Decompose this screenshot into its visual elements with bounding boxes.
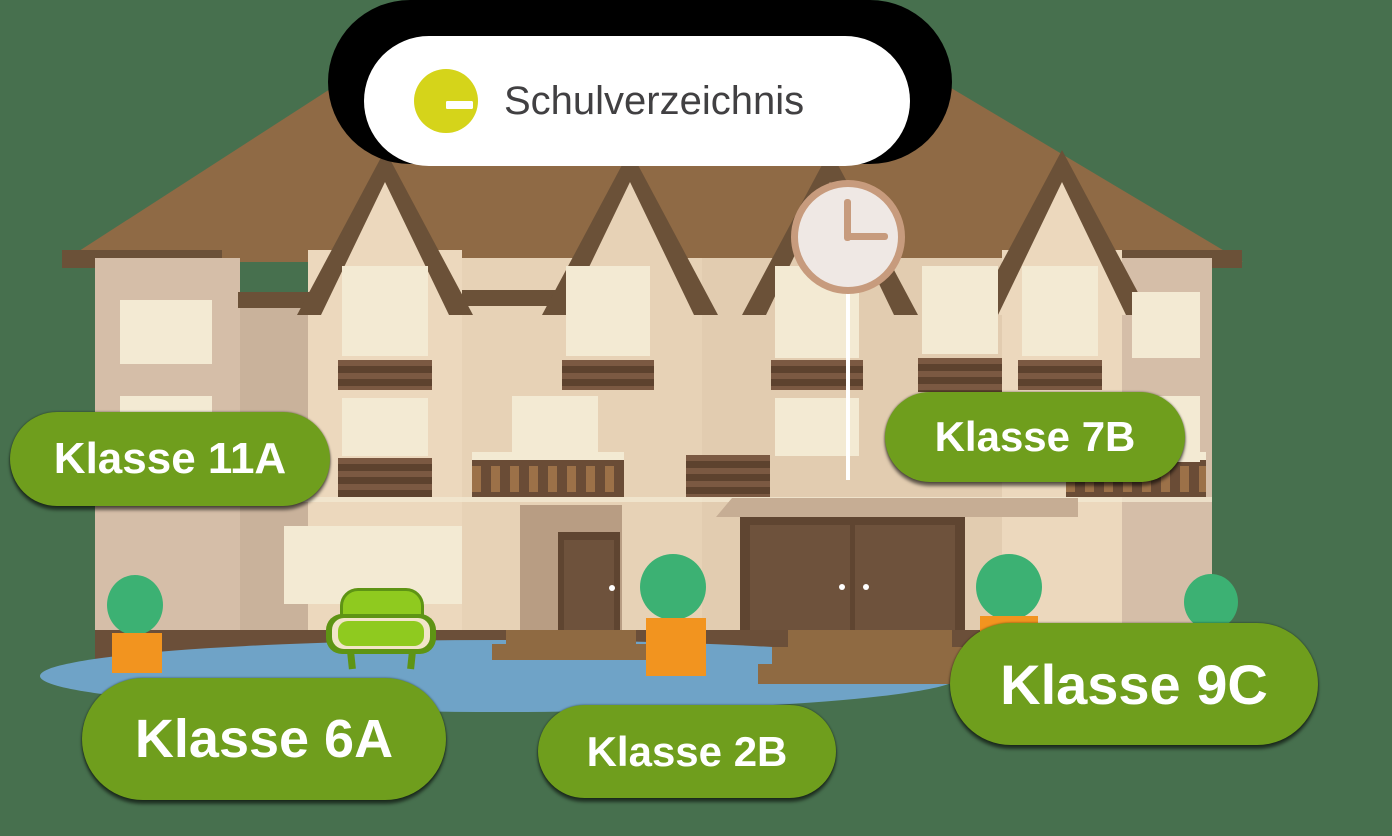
window: [120, 300, 212, 364]
door-knob: [839, 584, 845, 590]
entrance-door-panel: [564, 540, 614, 630]
window: [1132, 292, 1200, 358]
directory-title: Schulverzeichnis: [504, 36, 804, 166]
balcony: [472, 460, 624, 497]
window: [566, 266, 650, 356]
clock-pendulum-line: [846, 292, 850, 480]
window: [922, 266, 998, 354]
main-steps: [758, 664, 966, 684]
louver-panel: [562, 360, 654, 390]
couch-seat: [338, 621, 424, 646]
double-door-left[interactable]: [750, 525, 850, 630]
class-label-11a[interactable]: Klasse 11A: [10, 412, 330, 506]
tree: [640, 554, 706, 620]
door-knob: [863, 584, 869, 590]
porch-beam: [716, 498, 1078, 517]
louver-panel: [918, 358, 1002, 392]
tree: [107, 575, 163, 635]
main-steps: [772, 647, 962, 664]
planter-pot: [112, 633, 162, 673]
louver-panel: [1018, 360, 1102, 390]
louver-panel: [338, 458, 432, 497]
school-directory-scene: Klasse 11A Klasse 7B Klasse 6A Klasse 2B…: [0, 0, 1392, 836]
balcony-ledge: [472, 452, 624, 460]
class-label-7b[interactable]: Klasse 7B: [885, 392, 1185, 482]
class-label-2b[interactable]: Klasse 2B: [538, 705, 836, 798]
louver-panel: [686, 455, 770, 497]
window: [342, 398, 428, 456]
double-door-right[interactable]: [855, 525, 955, 630]
tree: [1184, 574, 1238, 630]
planter-pot: [646, 618, 706, 676]
louver-panel: [338, 360, 432, 390]
list-icon: [414, 69, 478, 133]
window: [342, 266, 428, 356]
class-label-6a[interactable]: Klasse 6A: [82, 678, 446, 800]
entrance-steps: [492, 644, 648, 660]
directory-header-chip[interactable]: Schulverzeichnis: [364, 36, 910, 166]
entrance-steps: [506, 630, 636, 644]
main-steps: [788, 630, 952, 647]
window: [1022, 266, 1098, 356]
window: [512, 396, 598, 456]
recess-eave: [238, 292, 312, 308]
clock-minute-hand: [845, 233, 888, 240]
class-label-9c[interactable]: Klasse 9C: [950, 623, 1318, 745]
tree: [976, 554, 1042, 620]
door-knob: [609, 585, 615, 591]
